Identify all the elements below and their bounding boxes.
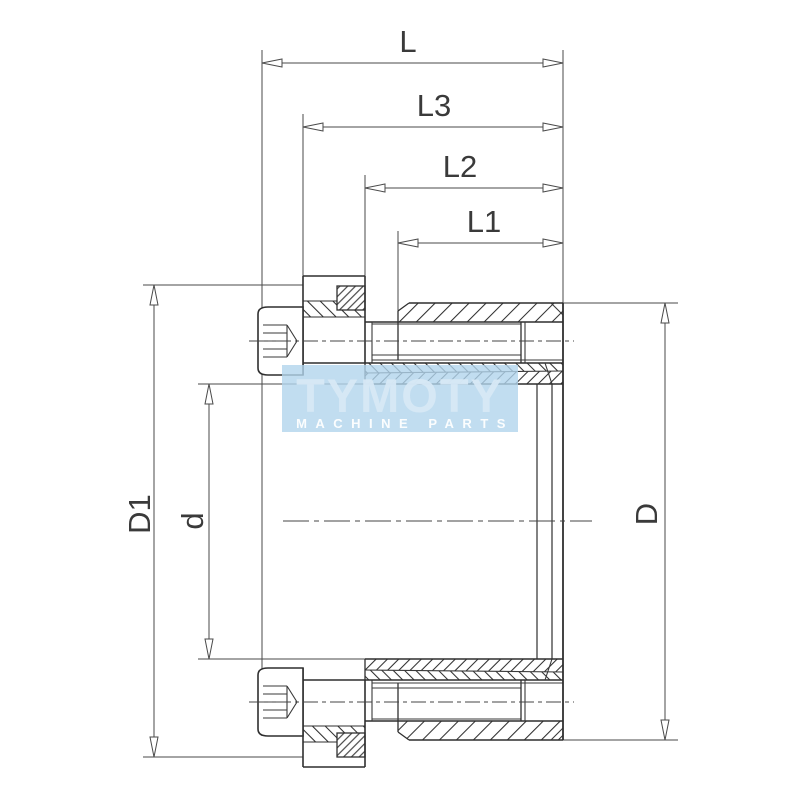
dim-D-label: D — [629, 503, 664, 525]
locking-assembly-drawing: L L3 L2 L1 D1 — [0, 0, 800, 800]
dim-L1-label: L1 — [467, 204, 501, 239]
sleeve-lip-bottom-section — [337, 733, 365, 757]
dim-L-label: L — [399, 24, 416, 59]
dim-L: L — [262, 24, 563, 67]
sleeve-lip-top-section — [337, 286, 365, 310]
dim-L3-label: L3 — [417, 88, 451, 123]
outer-ring-bottom-section — [365, 680, 563, 740]
watermark: TYMOTY MACHINE PARTS — [282, 365, 518, 432]
flange-collar-bottom-section — [303, 668, 365, 767]
flange-collar-top-section — [303, 276, 365, 375]
watermark-brand: TYMOTY — [296, 369, 504, 422]
dim-L2-label: L2 — [443, 149, 477, 184]
taper-interface-bottom-section — [303, 659, 563, 680]
dim-L3: L3 — [303, 88, 563, 131]
dim-D1-label: D1 — [122, 494, 157, 534]
dim-d-label: d — [175, 512, 210, 529]
technical-drawing-page: L L3 L2 L1 D1 — [0, 0, 800, 800]
outer-ring-top-section — [365, 303, 563, 363]
watermark-subtitle: MACHINE PARTS — [296, 416, 514, 431]
dim-L1: L1 — [398, 204, 563, 247]
dim-L2: L2 — [365, 149, 563, 192]
